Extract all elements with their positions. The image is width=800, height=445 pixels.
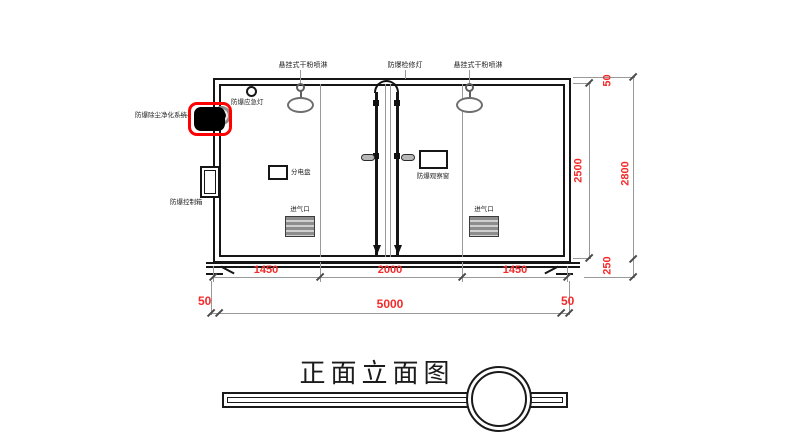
dimension-line-interior-height [589, 83, 590, 258]
control-box-label: 防爆控制箱 [170, 199, 203, 206]
air-inlet-left-grille [285, 216, 315, 237]
dimension-value: 50 [561, 295, 574, 307]
control-box-inner [204, 170, 216, 194]
extension-line [462, 262, 463, 282]
sprinkler-left-label: 悬挂式干粉喷淋 [263, 62, 343, 70]
purification-system-label: 防爆除尘净化系统 [131, 112, 187, 119]
air-inlet-right-grille [469, 216, 499, 237]
duct-joint [373, 100, 379, 106]
dimension-tick [629, 273, 637, 281]
extension-line [320, 262, 321, 282]
partition-line-left [320, 84, 321, 257]
dimension-value: 1450 [482, 265, 548, 276]
dimension-value: 1450 [233, 265, 299, 276]
drawing-title: 正面立面图 [282, 353, 472, 390]
observation-window-label: 防爆观察窗 [403, 173, 463, 180]
sprinkler-bell-icon [287, 97, 314, 113]
leader-line [405, 70, 406, 79]
dimension-value: 50 [603, 69, 614, 93]
elevation-drawing: 悬挂式干粉喷淋 防爆检修灯 悬挂式干粉喷淋 防爆应急灯 防爆除尘净化系统 防爆控… [0, 0, 800, 445]
dimension-tick [585, 254, 593, 262]
sprinkler-bell-icon [456, 97, 483, 113]
dimension-value: 50 [198, 295, 211, 307]
dimension-value: 5000 [290, 298, 490, 310]
duct-inner-line-left [385, 84, 386, 257]
duct-arrow-left [373, 245, 381, 255]
duct-inner-line-right [390, 84, 391, 257]
distribution-panel [268, 165, 288, 180]
duct-arrow-right [394, 245, 402, 255]
dimension-value: 2500 [574, 155, 585, 187]
duct-flange-right [401, 154, 415, 161]
observation-window [419, 150, 448, 169]
leader-line [469, 70, 470, 84]
section-bubble-inner [471, 371, 527, 427]
duct-pipe-right [396, 92, 399, 257]
duct-pipe-left [375, 92, 378, 257]
leader-line [300, 70, 301, 84]
distribution-panel-label: 分电盘 [291, 169, 311, 176]
emergency-light-icon [246, 86, 257, 97]
air-inlet-right-label: 进气口 [464, 206, 504, 213]
dimension-line-bottom [213, 277, 567, 278]
dimension-value: 2800 [621, 158, 632, 190]
purification-system-unit [194, 107, 225, 131]
dimension-value: 250 [603, 254, 614, 278]
inspection-light-label: 防爆检修灯 [379, 62, 431, 70]
duct-joint [394, 153, 400, 159]
duct-flange-left [361, 154, 375, 161]
sprinkler-right-label: 悬挂式干粉喷淋 [438, 62, 518, 70]
duct-joint [394, 100, 400, 106]
air-inlet-left-label: 进气口 [280, 206, 320, 213]
emergency-light-label: 防爆应急灯 [231, 99, 264, 106]
dimension-line-overall-width [211, 313, 569, 314]
dimension-value: 2000 [357, 265, 423, 276]
dimension-line-overall-height [633, 77, 634, 277]
dimension-tick [565, 309, 573, 317]
